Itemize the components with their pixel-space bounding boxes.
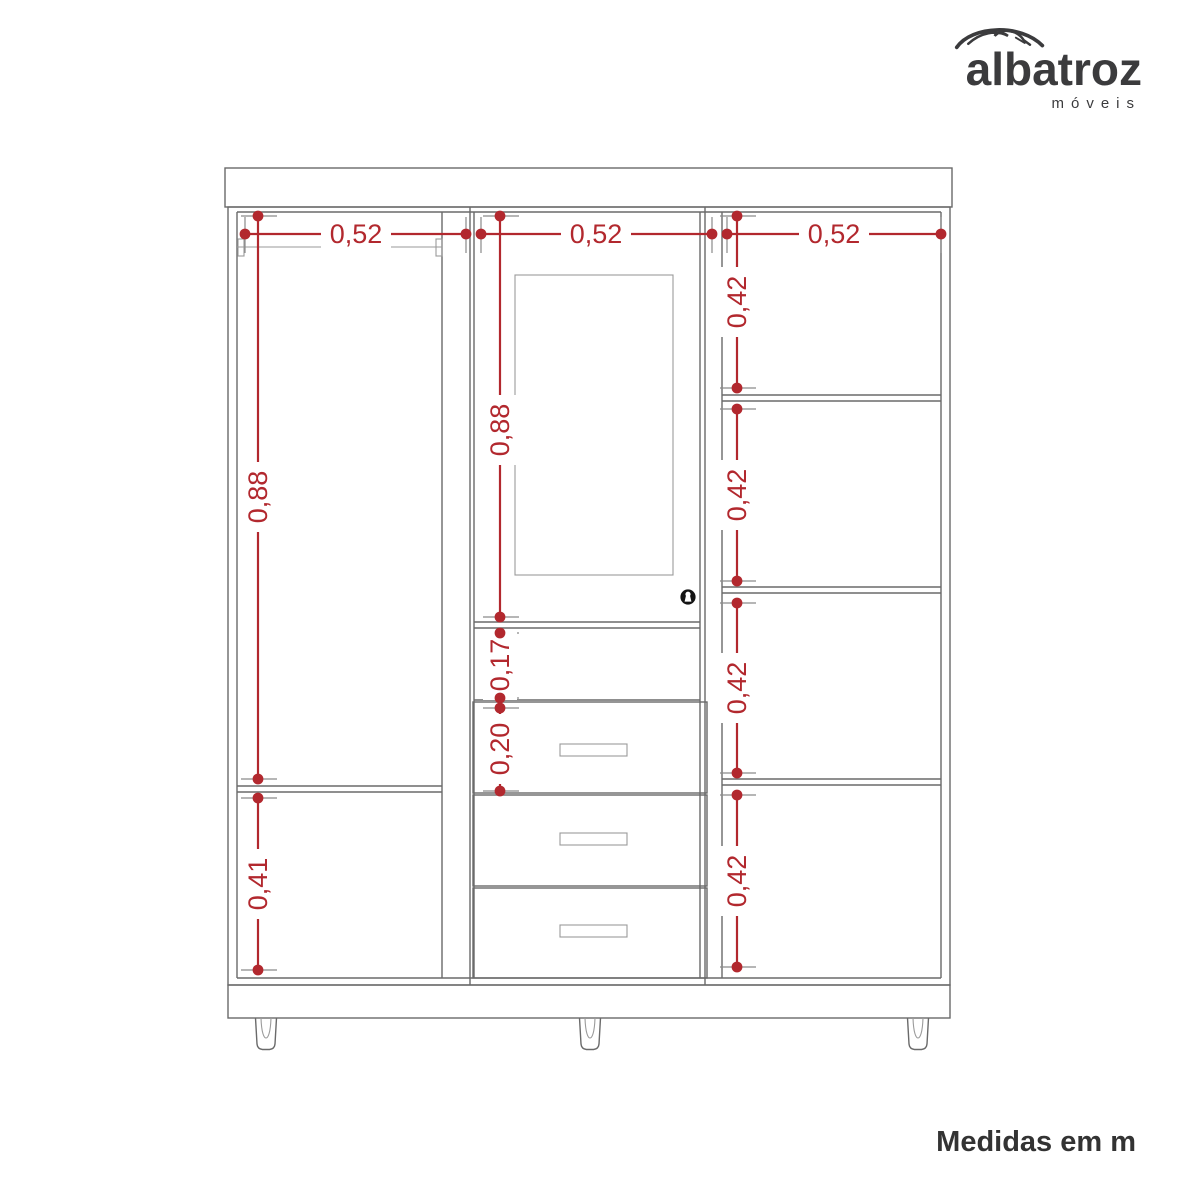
drawer-3 xyxy=(473,888,707,978)
base-plinth xyxy=(228,985,950,1018)
dim-right-shelf-3: 0,42 xyxy=(722,662,752,715)
dim-mid-drawer: 0,20 xyxy=(485,723,515,776)
right-shelves xyxy=(722,395,941,785)
drawer-3-handle xyxy=(560,925,627,937)
product-dimension-sheet: albatroz móveis xyxy=(0,0,1200,1200)
dim-top-left: 0,52 xyxy=(330,219,383,249)
dim-top-right: 0,52 xyxy=(808,219,861,249)
wardrobe-diagram: 0,52 0,52 0,52 0,88 0,41 0,88 0,17 0,20 … xyxy=(0,0,1200,1200)
drawer-2 xyxy=(473,795,707,886)
feet xyxy=(256,1018,929,1050)
dim-left-lower: 0,41 xyxy=(243,858,273,911)
dim-mid-door: 0,88 xyxy=(485,404,515,457)
units-note: Medidas em m xyxy=(936,1126,1136,1159)
dim-left-upper: 0,88 xyxy=(243,471,273,524)
dim-right-shelf-4: 0,42 xyxy=(722,855,752,908)
dim-top-middle: 0,52 xyxy=(570,219,623,249)
dimension-labels: 0,52 0,52 0,52 0,88 0,41 0,88 0,17 0,20 … xyxy=(243,219,860,910)
middle-section xyxy=(473,275,707,978)
right-section xyxy=(722,395,941,785)
drawer-1-handle xyxy=(560,744,627,756)
keyhole-icon xyxy=(680,589,695,604)
mirror xyxy=(515,275,673,575)
left-shelf xyxy=(237,786,442,792)
inner-top-bottom xyxy=(237,212,941,978)
crown-panel xyxy=(225,168,952,207)
dim-right-shelf-2: 0,42 xyxy=(722,469,752,522)
section-dividers xyxy=(237,207,941,985)
foot-right xyxy=(908,1018,929,1050)
label-plates xyxy=(241,217,869,919)
foot-left xyxy=(256,1018,277,1050)
mirror-door-bottom xyxy=(474,622,700,628)
cabinet-body xyxy=(228,207,950,985)
dim-right-shelf-1: 0,42 xyxy=(722,276,752,329)
dim-mid-niche: 0,17 xyxy=(485,639,515,692)
drawer-2-handle xyxy=(560,833,627,845)
foot-middle xyxy=(580,1018,601,1050)
